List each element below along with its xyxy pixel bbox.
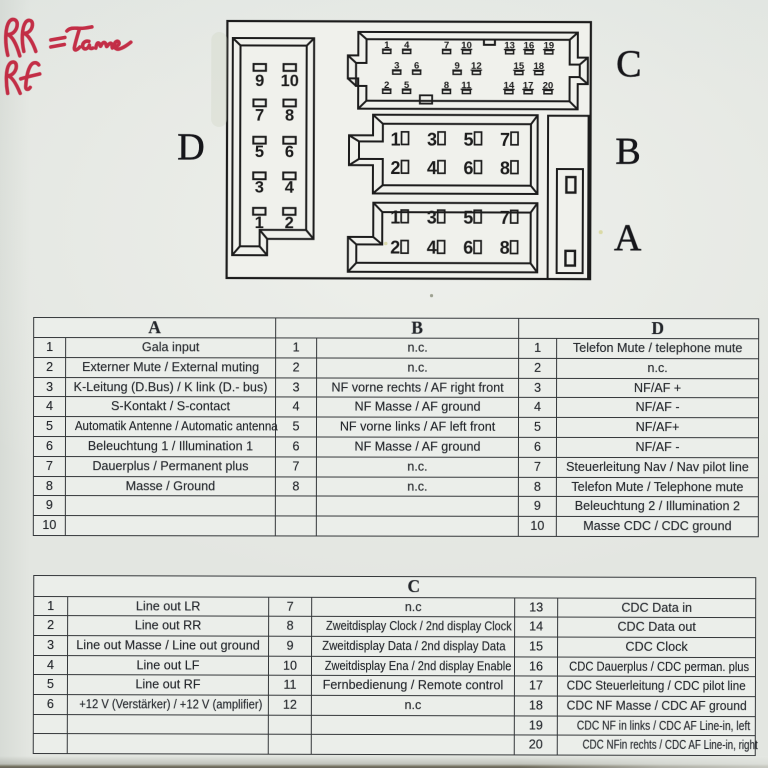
svg-text:5: 5 xyxy=(463,130,473,150)
svg-text:4: 4 xyxy=(427,158,437,178)
svg-text:7: 7 xyxy=(500,208,510,228)
svg-text:8: 8 xyxy=(500,238,510,258)
svg-text:3: 3 xyxy=(255,179,264,197)
svg-text:8: 8 xyxy=(500,158,510,178)
svg-text:6: 6 xyxy=(463,158,473,178)
svg-text:2: 2 xyxy=(390,237,400,257)
svg-text:2: 2 xyxy=(390,158,400,178)
svg-text:3: 3 xyxy=(427,207,437,227)
svg-text:5: 5 xyxy=(463,208,473,228)
svg-text:9: 9 xyxy=(255,72,264,90)
svg-text:4: 4 xyxy=(285,179,295,197)
svg-text:6: 6 xyxy=(285,143,294,161)
svg-text:4: 4 xyxy=(427,238,437,258)
svg-text:D: D xyxy=(177,126,205,168)
svg-text:1: 1 xyxy=(390,207,400,227)
svg-text:10: 10 xyxy=(281,72,299,90)
svg-text:1: 1 xyxy=(255,214,264,232)
svg-text:5: 5 xyxy=(255,143,264,161)
svg-text:B: B xyxy=(615,131,640,173)
svg-text:C: C xyxy=(616,43,641,85)
svg-text:7: 7 xyxy=(255,107,264,125)
svg-text:8: 8 xyxy=(285,107,294,125)
svg-text:7: 7 xyxy=(500,130,510,150)
svg-text:6: 6 xyxy=(463,238,473,258)
svg-text:3: 3 xyxy=(427,129,437,149)
svg-text:A: A xyxy=(614,217,642,259)
svg-text:1: 1 xyxy=(390,129,400,149)
svg-text:2: 2 xyxy=(285,214,294,232)
